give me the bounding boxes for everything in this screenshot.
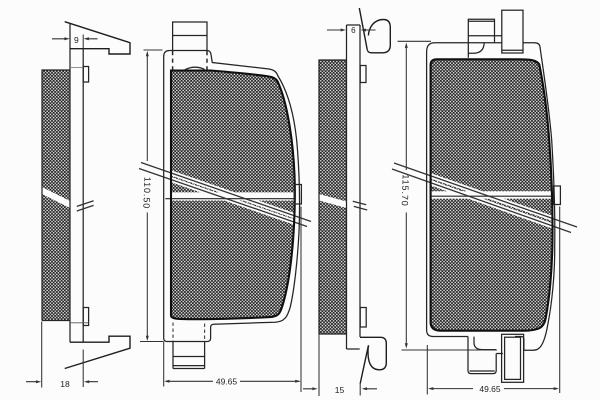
svg-text:9: 9 [74,35,79,45]
svg-text:15: 15 [335,385,345,395]
svg-text:115.70: 115.70 [400,174,411,207]
svg-text:6: 6 [351,26,356,35]
svg-text:110.50: 110.50 [141,177,152,210]
svg-text:49.65: 49.65 [216,376,238,386]
svg-text:49.65: 49.65 [479,384,501,394]
svg-text:18: 18 [60,379,70,389]
